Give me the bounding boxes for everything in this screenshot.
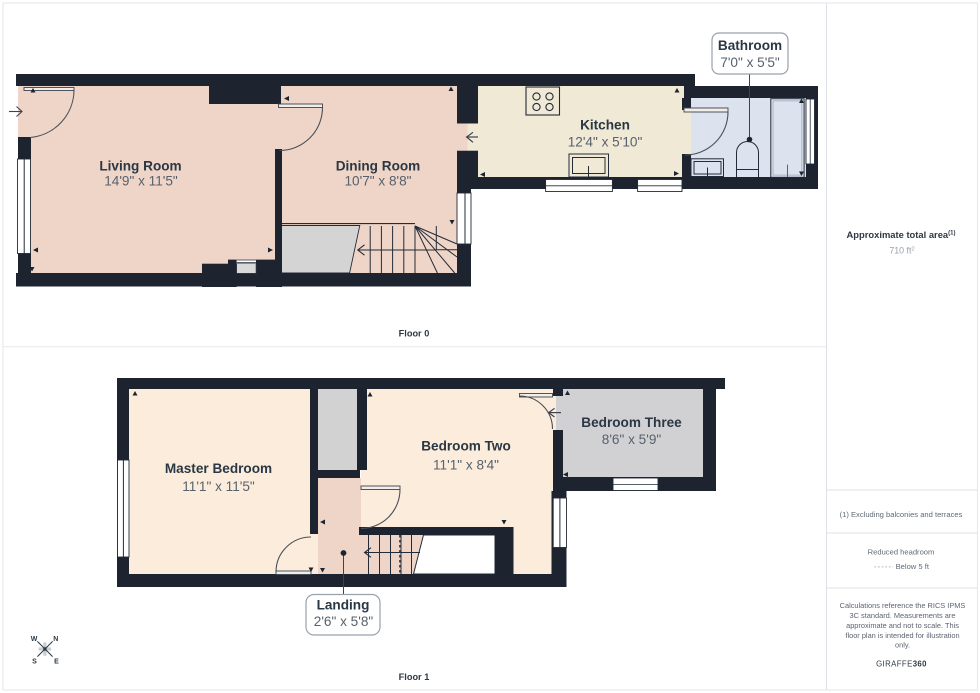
svg-text:710 ft2: 710 ft2: [889, 246, 914, 256]
svg-text:Floor 0: Floor 0: [399, 329, 430, 339]
svg-text:11'1" x 8'4": 11'1" x 8'4": [433, 458, 499, 473]
svg-text:Below 5 ft: Below 5 ft: [896, 562, 930, 571]
svg-text:N: N: [53, 636, 58, 643]
svg-text:approximate and not to scale.: approximate and not to scale. This: [846, 621, 959, 630]
svg-text:Dining Room: Dining Room: [336, 159, 421, 174]
svg-text:2'6" x 5'8": 2'6" x 5'8": [314, 614, 374, 629]
svg-text:W: W: [31, 636, 38, 643]
svg-text:Floor 1: Floor 1: [399, 672, 430, 682]
svg-text:7'0" x 5'5": 7'0" x 5'5": [720, 55, 780, 70]
svg-text:Bedroom Two: Bedroom Two: [421, 439, 511, 454]
svg-text:(1) Excluding balconies and te: (1) Excluding balconies and terraces: [840, 510, 963, 519]
svg-text:11'1" x 11'5": 11'1" x 11'5": [182, 479, 255, 494]
svg-text:Bedroom Three: Bedroom Three: [581, 415, 682, 430]
svg-text:E: E: [54, 659, 59, 666]
svg-text:Calculations reference the RIC: Calculations reference the RICS IPMS: [840, 601, 966, 610]
svg-text:GIRAFFE360: GIRAFFE360: [876, 659, 927, 668]
svg-text:12'4" x 5'10": 12'4" x 5'10": [568, 135, 643, 150]
svg-text:Kitchen: Kitchen: [580, 118, 630, 133]
svg-text:14'9" x 11'5": 14'9" x 11'5": [104, 174, 178, 189]
svg-text:8'6" x 5'9": 8'6" x 5'9": [602, 432, 662, 447]
svg-text:S: S: [32, 659, 37, 666]
svg-text:Approximate total area(1): Approximate total area(1): [847, 229, 956, 240]
svg-text:Master Bedroom: Master Bedroom: [165, 461, 272, 476]
svg-text:Reduced headroom: Reduced headroom: [868, 547, 935, 556]
svg-text:Bathroom: Bathroom: [718, 38, 782, 53]
svg-text:floor plan is intended for ill: floor plan is intended for illustration: [845, 631, 959, 640]
svg-text:Landing: Landing: [317, 598, 370, 613]
svg-text:10'7" x 8'8": 10'7" x 8'8": [345, 174, 412, 189]
svg-text:Living Room: Living Room: [99, 159, 181, 174]
svg-text:3C standard. Measurements are: 3C standard. Measurements are: [850, 611, 956, 620]
svg-text:only.: only.: [895, 640, 910, 649]
